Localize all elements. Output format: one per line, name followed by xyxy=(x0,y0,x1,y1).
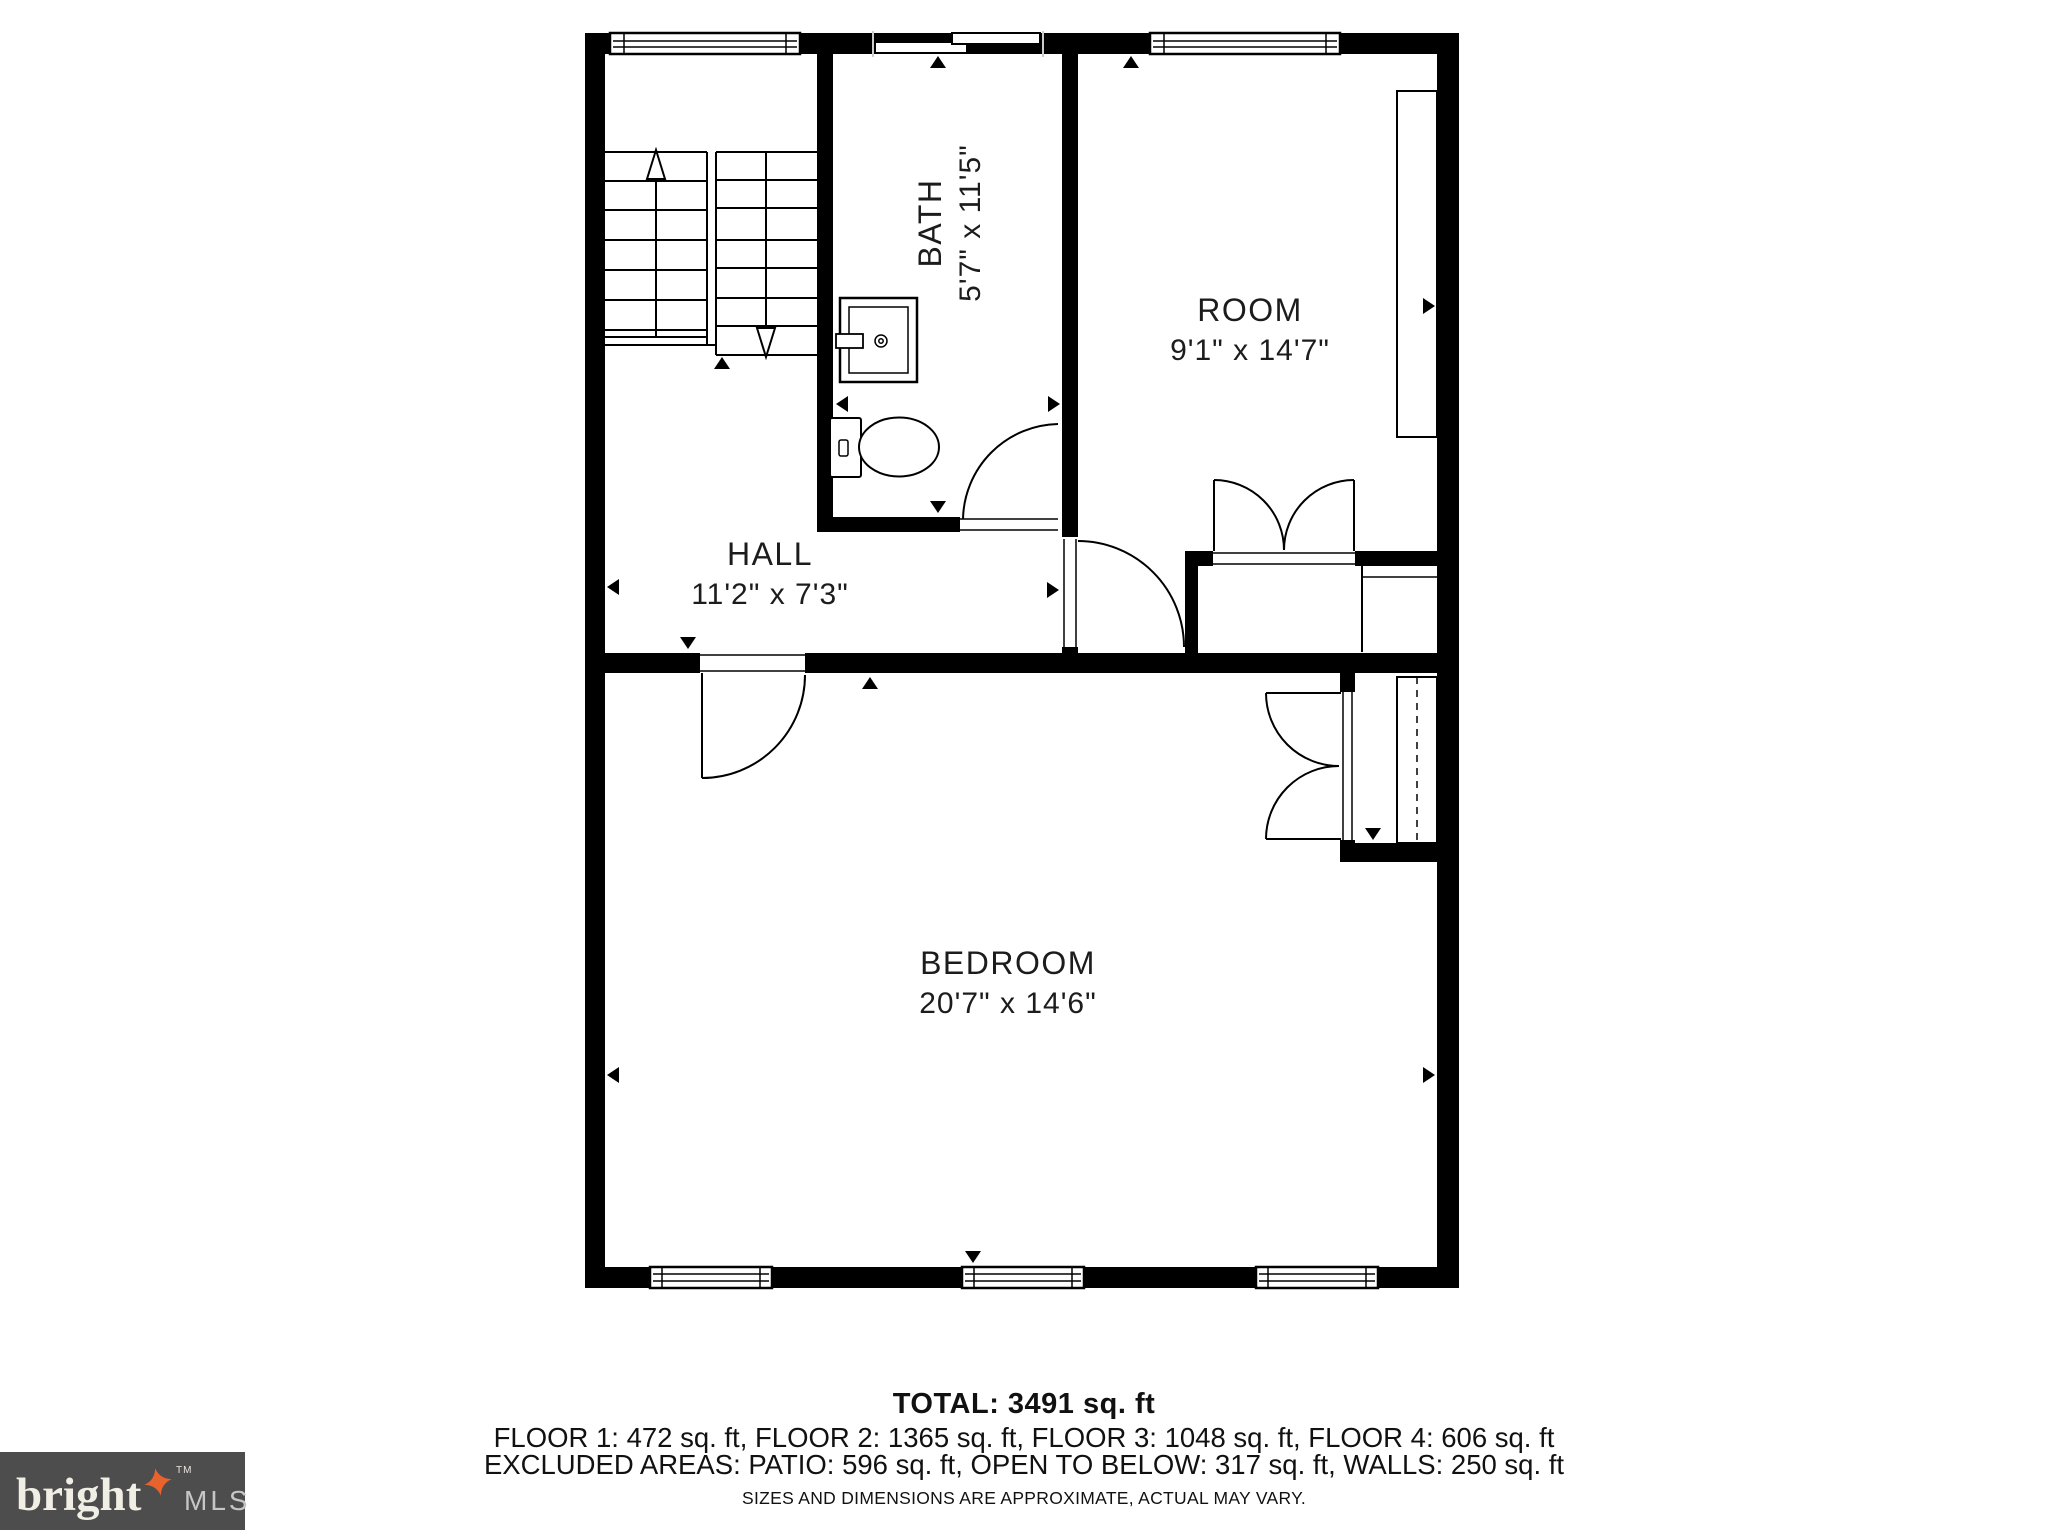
door-arc xyxy=(1266,693,1339,766)
tick-left-icon xyxy=(607,579,619,595)
bedroom-name: BEDROOM xyxy=(919,943,1097,983)
window-room xyxy=(1150,33,1340,54)
tick-left-icon xyxy=(607,1067,619,1083)
bedroom-closet-double-doors xyxy=(1266,692,1354,840)
tick-right-icon xyxy=(1047,582,1059,598)
bath-dims: 5'7" x 11'5" xyxy=(950,144,992,302)
hall-name: HALL xyxy=(691,534,849,574)
window-bedroom-right xyxy=(1256,1267,1378,1288)
tick-down-icon xyxy=(965,1251,981,1263)
hall-dims: 11'2" x 7'3" xyxy=(691,574,849,616)
tick-up-icon xyxy=(714,357,730,369)
total-area-text: TOTAL: 3491 sq. ft xyxy=(0,1388,2048,1421)
stairs-down-arrow-icon xyxy=(757,328,775,357)
toilet-icon xyxy=(830,418,939,478)
bath-door xyxy=(960,424,1058,532)
window-bedroom-left xyxy=(650,1267,772,1288)
stairs xyxy=(605,150,817,357)
logo-tm-text: TM xyxy=(176,1465,192,1476)
room-label: ROOM 9'1" x 14'7" xyxy=(1170,290,1330,372)
tick-down-icon xyxy=(680,637,696,649)
built-ins xyxy=(1362,91,1437,843)
room-closet-double-doors xyxy=(1213,480,1355,566)
door-arc xyxy=(1078,541,1184,647)
tick-up-icon xyxy=(930,56,946,68)
door-arc xyxy=(963,424,1058,519)
window-bedroom-center xyxy=(962,1267,1084,1288)
sink-vanity-icon xyxy=(836,298,917,382)
floorplan-page: BATH 5'7" x 11'5" ROOM 9'1" x 14'7" HALL… xyxy=(0,0,2048,1536)
tick-right-icon xyxy=(1423,298,1435,314)
doors xyxy=(700,424,1355,840)
bath-name: BATH xyxy=(910,144,950,302)
tick-right-icon xyxy=(1048,396,1060,412)
hall-label: HALL 11'2" x 7'3" xyxy=(691,534,849,616)
room-wardrobe xyxy=(1397,91,1437,437)
room-dims: 9'1" x 14'7" xyxy=(1170,330,1330,372)
window-top-left xyxy=(610,33,800,54)
bright-mls-logo: bright TM MLS xyxy=(0,1452,245,1530)
bedroom-label: BEDROOM 20'7" x 14'6" xyxy=(919,943,1097,1025)
logo-mls-text: MLS xyxy=(184,1487,251,1515)
door-arc xyxy=(1214,480,1284,550)
tick-right-icon xyxy=(1423,1067,1435,1083)
room-name: ROOM xyxy=(1170,290,1330,330)
stairs-up-arrow-icon xyxy=(647,150,665,179)
door-arc xyxy=(1266,766,1339,839)
tick-up-icon xyxy=(862,677,878,689)
bath-label: BATH 5'7" x 11'5" xyxy=(910,144,992,302)
logo-brand-text: bright xyxy=(16,1472,141,1519)
hall-to-room-door xyxy=(1062,539,1184,647)
door-arc xyxy=(1284,480,1354,550)
logo-star-icon xyxy=(141,1465,175,1499)
bedroom-closet-shelf xyxy=(1397,677,1437,843)
bath-fixtures xyxy=(830,298,939,477)
excluded-areas-text: EXCLUDED AREAS: PATIO: 596 sq. ft, OPEN … xyxy=(0,1449,2048,1481)
bedroom-dims: 20'7" x 14'6" xyxy=(919,983,1097,1025)
tick-down-icon xyxy=(1365,828,1381,840)
bedroom-door xyxy=(700,653,805,778)
floorplan-drawing xyxy=(0,0,2048,1536)
tick-down-icon xyxy=(930,501,946,513)
tick-left-icon xyxy=(836,396,848,412)
door-arc xyxy=(702,675,805,778)
disclaimer-text: SIZES AND DIMENSIONS ARE APPROXIMATE, AC… xyxy=(0,1488,2048,1509)
tick-up-icon xyxy=(1123,56,1139,68)
